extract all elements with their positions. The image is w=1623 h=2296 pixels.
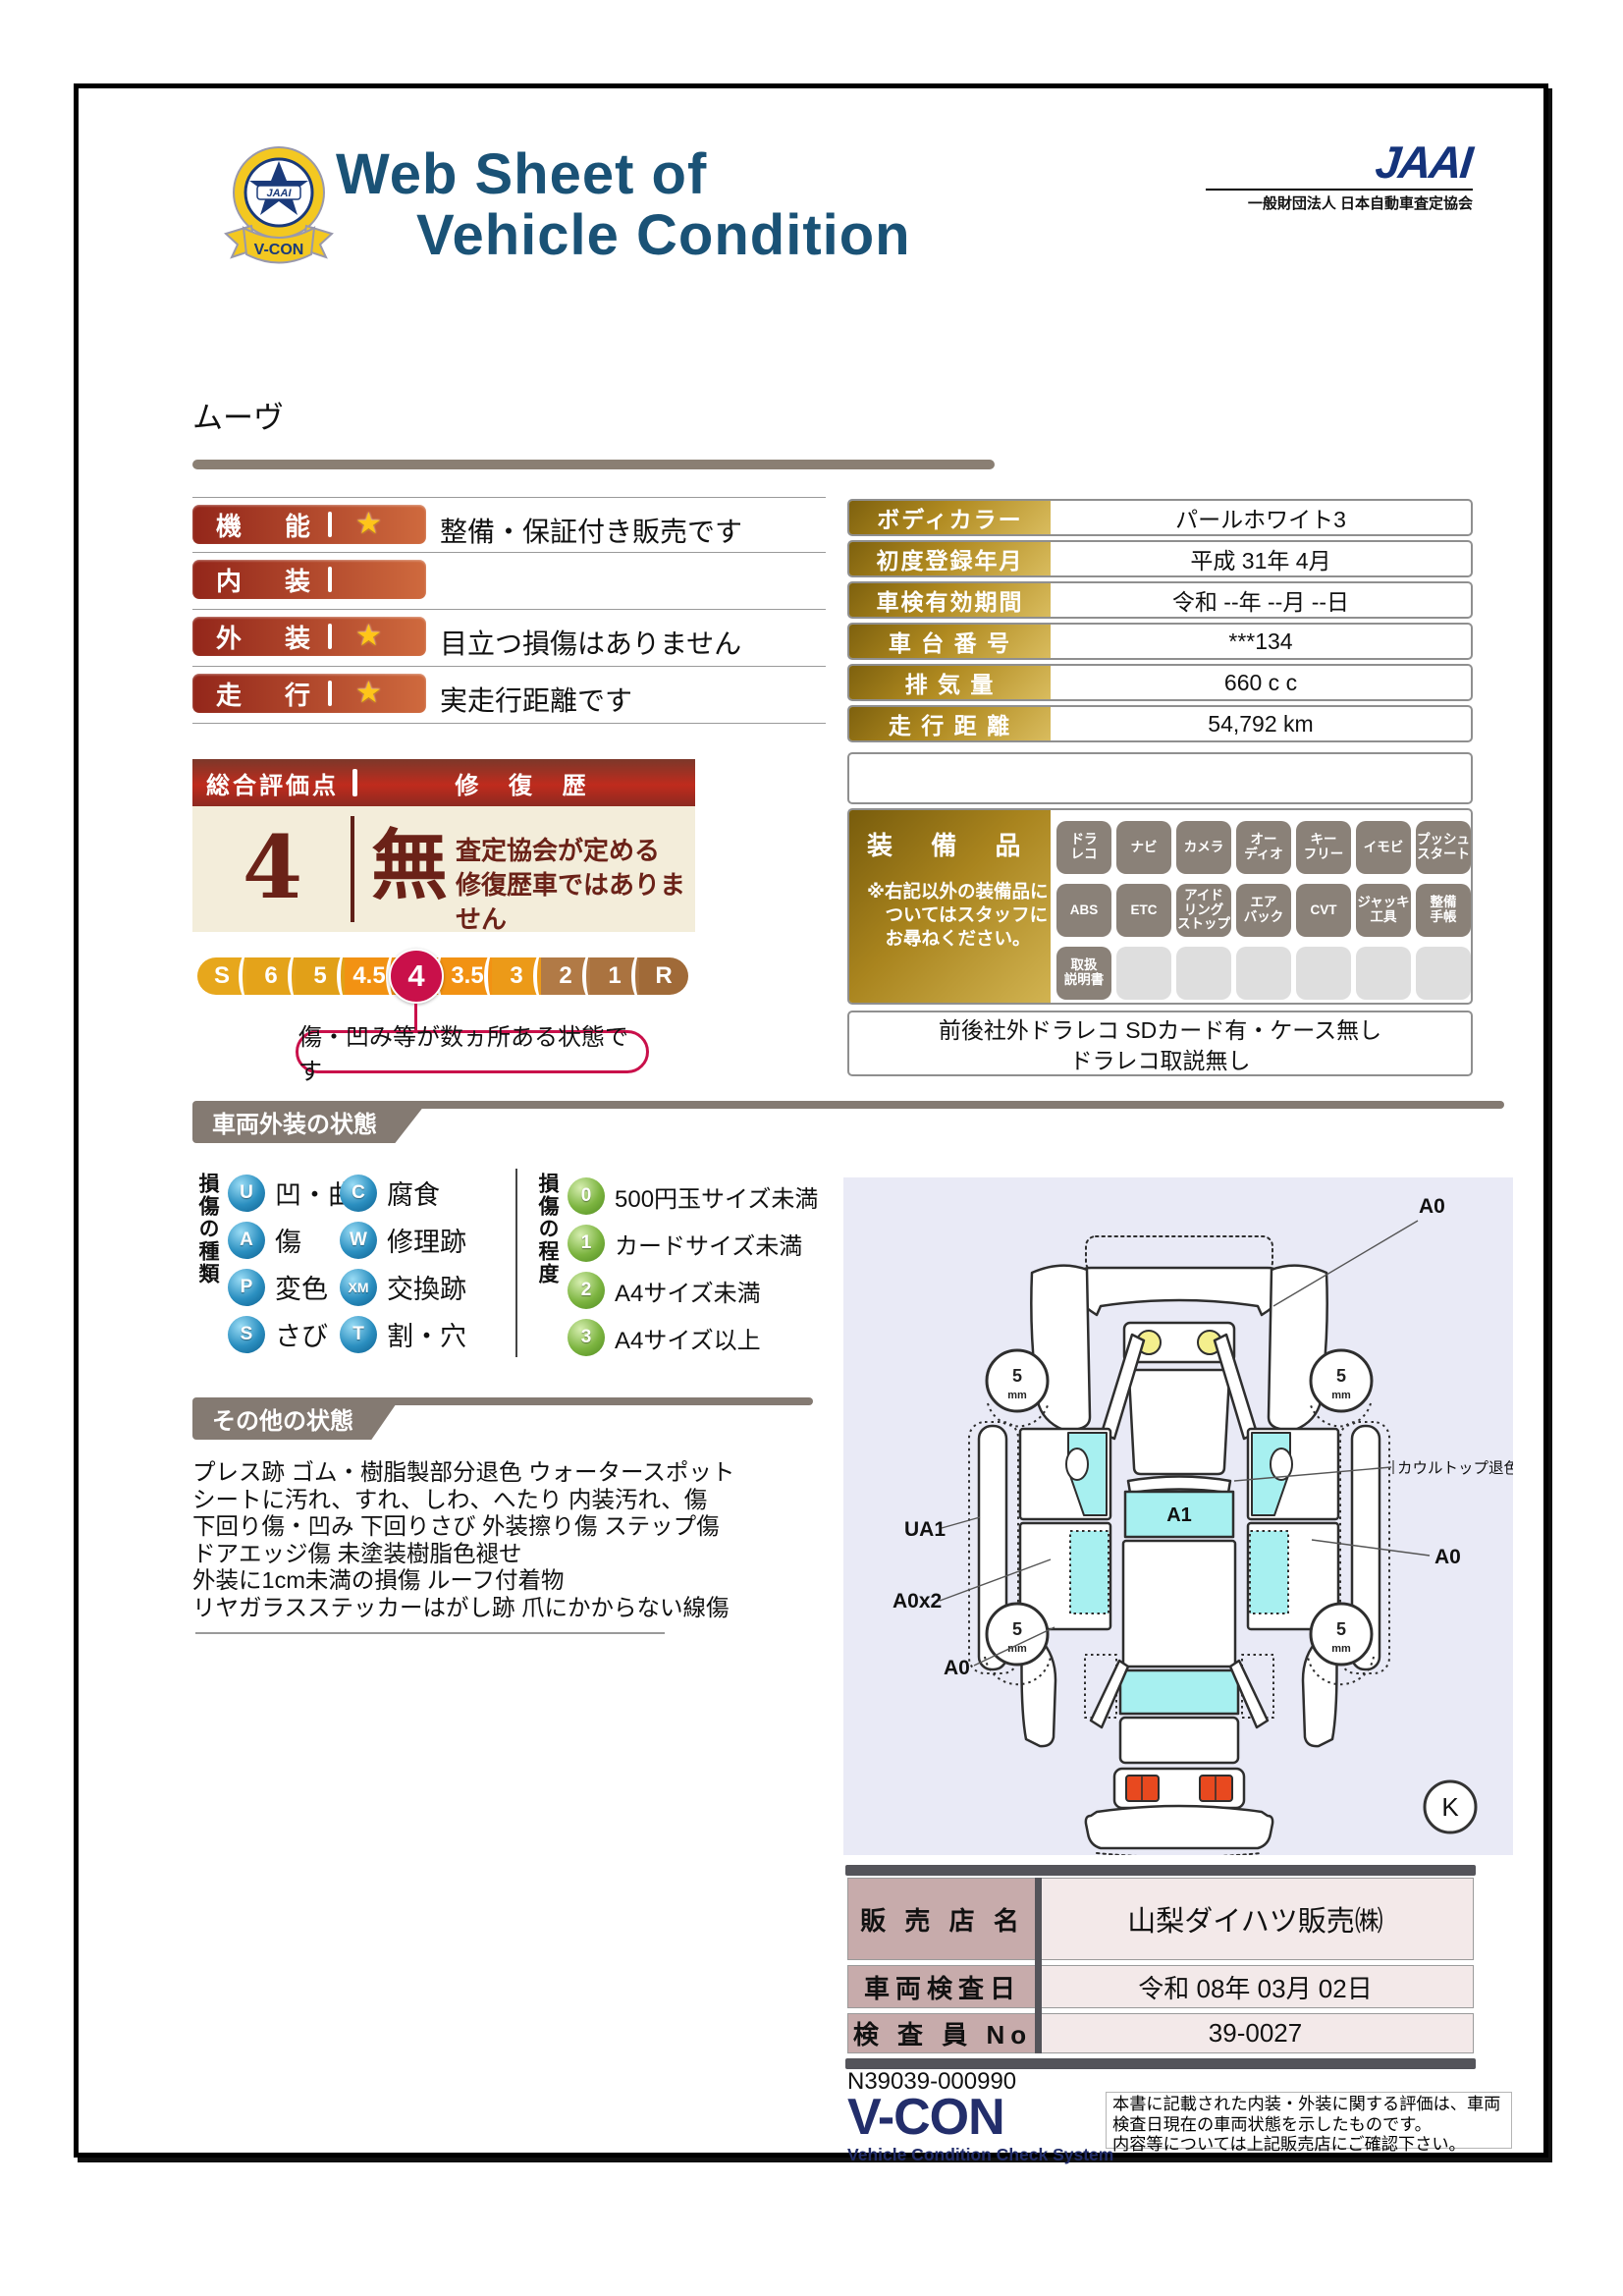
equipment-badge-ドラレコ: ドラレコ	[1056, 821, 1111, 874]
dealer-row-shop: 販 売 店 名 山梨ダイハツ販売㈱	[847, 1878, 1474, 1960]
info-value: 54,792 km	[1051, 707, 1471, 740]
other-condition-line: ドアエッジ傷 未塗装樹脂色褪せ	[192, 1541, 821, 1568]
equipment-badge-CVT: CVT	[1296, 884, 1351, 937]
info-value: 令和 --年 --月 --日	[1051, 583, 1471, 617]
page-title-line2: Vehicle Condition	[416, 202, 911, 268]
section-title-exterior: 車両外装の状態	[192, 1101, 428, 1143]
equipment-badge-カメラ: カメラ	[1176, 821, 1231, 874]
disclaimer-line: 本書に記載された内装・外装に関する評価は、車両	[1112, 2094, 1505, 2114]
info-label: 車検有効期間	[849, 583, 1051, 617]
dealer-row-inspection-date: 車両検査日 令和 08年 03月 02日	[847, 1965, 1474, 2008]
disclaimer-line: 検査日現在の車両状態を示したものです。	[1112, 2114, 1505, 2135]
legend-sphere-S: S	[228, 1316, 265, 1353]
info-row-inspection-period: 車検有効期間 令和 --年 --月 --日	[847, 581, 1473, 619]
body-divider	[351, 816, 354, 922]
equipment-badge-empty	[1416, 947, 1471, 1000]
legend-sphere-U: U	[228, 1175, 265, 1212]
info-row-displacement: 排 気 量 660 c c	[847, 664, 1473, 701]
empty-remarks-box	[847, 752, 1473, 804]
jaai-divider	[1206, 189, 1473, 191]
legend-label: 修理跡	[387, 1221, 466, 1259]
section-title-other: その他の状態	[192, 1397, 401, 1440]
legend-item-T: T割・穴	[340, 1315, 466, 1353]
dealer-value: 令和 08年 03月 02日	[1038, 1965, 1474, 2008]
other-condition-line: 外装に1cm未満の損傷 ルーフ付着物	[192, 1567, 821, 1595]
legend-label: カードサイズ未満	[615, 1227, 802, 1261]
info-row-first-registration: 初度登録年月 平成 31年 4月	[847, 540, 1473, 577]
damage-label-a0-left: A0	[944, 1657, 970, 1679]
repair-history-value: 無	[371, 820, 448, 912]
rating-note: 目立つ損傷はありません	[440, 623, 862, 662]
legend-label: さび	[275, 1315, 328, 1353]
rating-badge-interior: 内装 ★	[192, 560, 426, 599]
equipment-badge-アイドリングストップ: アイドリングストップ	[1176, 884, 1231, 937]
legend-label: A4サイズ未満	[615, 1274, 761, 1308]
other-condition-line: シートに汚れ、すれ、しわ、へたり 内装汚れ、傷	[192, 1487, 821, 1514]
equipment-note-line: ついてはスタッフに	[867, 903, 1051, 927]
equipment-section: 装 備 品 ※右記以外の装備品に ついてはスタッフに お尋ねください。 ドラレコ…	[847, 808, 1473, 1005]
equipment-title: 装 備 品	[867, 826, 1051, 862]
overall-score-box: 総合評価点 修 復 歴 4 無 査定協会が定める 修復歴車ではありません	[192, 759, 695, 932]
legend-label: 腐食	[387, 1174, 440, 1212]
info-value: ***134	[1051, 625, 1471, 658]
info-value: パールホワイト3	[1051, 501, 1471, 534]
rating-note: 整備・保証付き販売です	[440, 511, 862, 550]
info-label: 初度登録年月	[849, 542, 1051, 575]
page-title-line1: Web Sheet of	[336, 141, 707, 207]
disclaimer-text: 本書に記載された内装・外装に関する評価は、車両検査日現在の車両状態を示したもので…	[1106, 2092, 1512, 2149]
legend-item-C: C腐食	[340, 1174, 440, 1212]
emblem-ribbon-label: V-CON	[254, 242, 304, 258]
dealer-label: 販 売 店 名	[847, 1878, 1038, 1960]
dealer-value: 山梨ダイハツ販売㈱	[1038, 1878, 1474, 1960]
legend-item-W: W修理跡	[340, 1221, 466, 1259]
equipment-note-line: ※右記以外の装備品に	[867, 880, 1051, 903]
rear-window	[1120, 1670, 1238, 1714]
equipment-badge-empty	[1236, 947, 1291, 1000]
legend-divider	[515, 1169, 517, 1357]
legend-sphere-W: W	[340, 1222, 377, 1259]
star-icon: ★	[355, 679, 382, 708]
rating-label: 内装	[216, 562, 353, 598]
disclaimer-line: 内容等については上記販売店にご確認下さい。	[1112, 2134, 1505, 2155]
equipment-badge-取扱説明書: 取扱説明書	[1056, 947, 1111, 1000]
repair-history-title: 修 復 歴	[357, 766, 695, 800]
info-label: ボディカラー	[849, 501, 1051, 534]
legend-sphere-3: 3	[568, 1319, 605, 1356]
hood-panel	[1129, 1370, 1229, 1474]
header-divider-bar	[192, 460, 995, 469]
rating-divider	[328, 512, 332, 537]
equipment-note: ※右記以外の装備品に ついてはスタッフに お尋ねください。	[867, 880, 1051, 951]
equipment-badge-オーディオ: オーディオ	[1236, 821, 1291, 874]
rear-door-window-dotted	[1070, 1531, 1109, 1613]
legend-sphere-C: C	[340, 1175, 377, 1212]
overall-score-body: 4 無 査定協会が定める 修復歴車ではありません	[192, 806, 695, 932]
legend-label: 交換跡	[387, 1268, 466, 1306]
front-fender	[1031, 1266, 1090, 1432]
selected-score-marker: 4	[389, 949, 444, 1004]
info-label: 排 気 量	[849, 666, 1051, 699]
svg-text:JAAI: JAAI	[266, 188, 292, 199]
svg-text:mm: mm	[1007, 1390, 1027, 1401]
info-row-mileage: 走 行 距 離 54,792 km	[847, 705, 1473, 742]
divider	[195, 1632, 665, 1634]
info-label: 走 行 距 離	[849, 707, 1051, 740]
other-condition-line: 下回り傷・凹み 下回りさび 外装擦り傷 ステップ傷	[192, 1513, 821, 1541]
divider	[192, 609, 826, 610]
score-description-bubble: 傷・凹み等が数ヵ所ある状態です	[296, 1030, 649, 1073]
legend-item-U: U凹・曲	[228, 1174, 354, 1212]
equipment-badge-ETC: ETC	[1116, 884, 1171, 937]
repair-history-note: 査定協会が定める 修復歴車ではありません	[456, 834, 695, 937]
legend-sphere-2: 2	[568, 1272, 605, 1309]
overall-score-value: 4	[192, 816, 352, 918]
info-row-bodycolor: ボディカラー パールホワイト3	[847, 499, 1473, 536]
equipment-badge-ジャッキ工具: ジャッキ工具	[1356, 884, 1411, 937]
repair-note-line1: 査定協会が定める	[456, 834, 695, 868]
legend-item-3: 3A4サイズ以上	[568, 1319, 761, 1356]
legend-label: 傷	[275, 1221, 301, 1259]
rating-divider	[328, 624, 332, 649]
star-icon: ★	[355, 622, 382, 651]
legend-label: 変色	[275, 1268, 328, 1306]
dealer-label: 検 査 員 No	[847, 2013, 1038, 2053]
equipment-note-line: お尋ねください。	[867, 927, 1051, 951]
tailgate	[1120, 1718, 1238, 1763]
rating-badge-exterior: 外装 ★	[192, 617, 426, 656]
legend-sphere-P: P	[228, 1269, 265, 1306]
dealer-value: 39-0027	[1038, 2013, 1474, 2053]
damage-kinds-title: 損傷の種類	[192, 1173, 222, 1285]
other-conditions-text: プレス跡 ゴム・樹脂製部分退色 ウォータースポットシートに汚れ、すれ、しわ、へた…	[192, 1459, 821, 1621]
jaai-organization: 一般財団法人 日本自動車査定協会	[1206, 192, 1473, 213]
equipment-remark-line2: ドラレコ取説無し	[849, 1046, 1471, 1076]
equipment-grid: ドラレコナビカメラオーディオキーフリーイモビプッシュスタートABSETCアイドリ…	[1056, 821, 1471, 1000]
equipment-badge-キーフリー: キーフリー	[1296, 821, 1351, 874]
star-icon: ★	[355, 510, 382, 539]
divider	[192, 552, 826, 553]
svg-text:5: 5	[1012, 1619, 1022, 1639]
legend-item-A: A傷	[228, 1221, 301, 1259]
equipment-badge-プッシュスタート: プッシュスタート	[1416, 821, 1471, 874]
legend-item-S: Sさび	[228, 1315, 328, 1353]
damage-label-a1: A1	[1166, 1504, 1192, 1526]
side-mirror-icon	[1066, 1449, 1088, 1480]
rating-label: 走行	[216, 676, 353, 712]
damage-label-a0-top: A0	[1419, 1195, 1445, 1218]
rating-divider	[328, 567, 332, 592]
divider	[192, 666, 826, 667]
cowl-top	[1128, 1477, 1230, 1494]
legend-sphere-XM: XM	[340, 1269, 377, 1306]
legend-label: A4サイズ以上	[615, 1321, 761, 1355]
car-damage-diagram: 5mm 5mm 5mm 5mm A0 カウルトップ退色 A1 UA1 A0x2 …	[843, 1177, 1513, 1855]
legend-item-0: 0500円玉サイズ未満	[568, 1177, 818, 1215]
svg-text:mm: mm	[1331, 1390, 1351, 1401]
svg-text:5: 5	[1012, 1366, 1022, 1386]
legend-item-1: 1カードサイズ未満	[568, 1225, 802, 1262]
rating-label: 機能	[216, 507, 353, 543]
rating-badge-mileage: 走行 ★	[192, 674, 426, 713]
vcon-logo-subtitle: Vehicle Condition Check System	[847, 2145, 1113, 2165]
sheet-page: JAAI V-CON Web Sheet of Vehicle Conditio…	[74, 83, 1548, 2158]
equipment-gold-panel: 装 備 品 ※右記以外の装備品に ついてはスタッフに お尋ねください。	[849, 810, 1051, 1005]
legend-sphere-0: 0	[568, 1177, 605, 1215]
overall-score-title: 総合評価点	[192, 766, 352, 800]
damage-label-a0-right: A0	[1434, 1546, 1461, 1568]
svg-text:5: 5	[1336, 1366, 1346, 1386]
scale-segment-R: R	[639, 957, 688, 995]
other-condition-line: リヤガラスステッカーはがし跡 爪にかからない線傷	[192, 1595, 821, 1622]
equipment-badge-empty	[1296, 947, 1351, 1000]
equipment-badge-整備手帳: 整備手帳	[1416, 884, 1471, 937]
info-row-chassis-number: 車 台 番 号 ***134	[847, 623, 1473, 660]
legend-sphere-T: T	[340, 1316, 377, 1353]
damage-degrees-title: 損傷の程度	[532, 1173, 562, 1285]
legend-item-XM: XM交換跡	[340, 1268, 466, 1306]
equipment-badge-empty	[1356, 947, 1411, 1000]
divider	[192, 497, 826, 498]
equipment-badge-empty	[1116, 947, 1171, 1000]
info-value: 660 c c	[1051, 666, 1471, 699]
equipment-badge-エアバック: エアバック	[1236, 884, 1291, 937]
roof-panel	[1123, 1541, 1235, 1667]
rating-note: 実走行距離です	[440, 680, 862, 719]
jaai-logo: JAAI	[1291, 136, 1474, 189]
legend-item-2: 2A4サイズ未満	[568, 1272, 761, 1309]
dealer-label: 車両検査日	[847, 1965, 1038, 2008]
repair-note-line2: 修復歴車ではありません	[456, 868, 695, 937]
rating-divider	[328, 681, 332, 706]
overall-score-header: 総合評価点 修 復 歴	[192, 759, 695, 806]
equipment-remarks: 前後社外ドラレコ SDカード有・ケース無し ドラレコ取説無し	[847, 1011, 1473, 1076]
cowl-top-fade-label: カウルトップ退色	[1397, 1459, 1513, 1477]
damage-label-a0x2: A0x2	[893, 1590, 942, 1613]
equipment-badge-イモビ: イモビ	[1356, 821, 1411, 874]
svg-text:mm: mm	[1331, 1643, 1351, 1655]
rating-badge-function: 機能 ★	[192, 505, 426, 544]
k-mark: K	[1441, 1792, 1459, 1822]
legend-label: 割・穴	[387, 1315, 466, 1353]
table-divider	[1035, 1878, 1042, 2053]
legend-item-P: P変色	[228, 1268, 328, 1306]
info-label: 車 台 番 号	[849, 625, 1051, 658]
equipment-badge-empty	[1176, 947, 1231, 1000]
table-top-bar	[845, 1865, 1476, 1876]
equipment-badge-ABS: ABS	[1056, 884, 1111, 937]
damage-label-ua1: UA1	[904, 1518, 946, 1541]
legend-sphere-A: A	[228, 1222, 265, 1259]
vcon-logo: V-CON	[847, 2088, 1004, 2147]
equipment-remark-line1: 前後社外ドラレコ SDカード有・ケース無し	[849, 1015, 1471, 1046]
info-value: 平成 31年 4月	[1051, 542, 1471, 575]
other-condition-line: プレス跡 ゴム・樹脂製部分退色 ウォータースポット	[192, 1459, 821, 1487]
svg-text:5: 5	[1336, 1619, 1346, 1639]
vcon-emblem: JAAI V-CON	[222, 136, 336, 273]
dealer-row-inspector: 検 査 員 No 39-0027	[847, 2013, 1474, 2053]
equipment-badge-ナビ: ナビ	[1116, 821, 1171, 874]
rear-bumper	[1086, 1806, 1272, 1848]
legend-label: 500円玉サイズ未満	[615, 1179, 818, 1214]
vehicle-name: ムーヴ	[192, 393, 284, 437]
rating-label: 外装	[216, 619, 353, 655]
divider	[192, 723, 826, 724]
legend-sphere-1: 1	[568, 1225, 605, 1262]
